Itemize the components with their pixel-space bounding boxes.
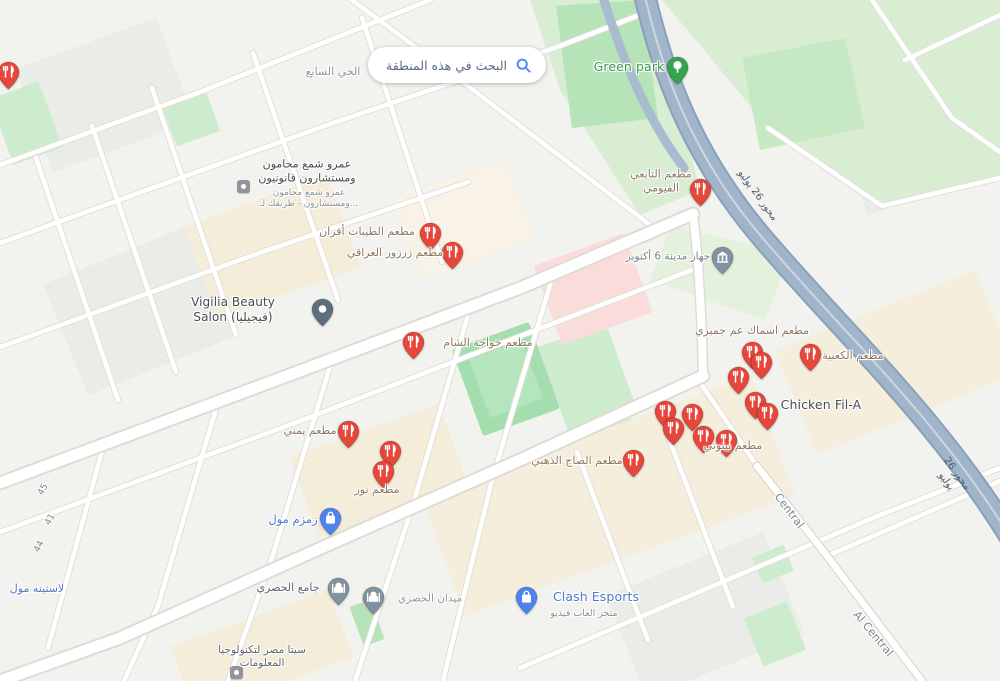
pin-matam-alkaabia[interactable]: [799, 343, 822, 372]
pin-matam-altabei[interactable]: [689, 178, 712, 207]
search-this-area-label: البحث في هذه المنطقة: [386, 58, 507, 73]
map-root: الحي السابععمرو شمع محامون ومستشارون قان…: [0, 0, 1000, 681]
search-this-area-button[interactable]: البحث في هذه المنطقة: [368, 47, 546, 83]
restaurant-pin-icon: [756, 402, 779, 431]
poi-sublabel-amr-shamaa: عمرو شمع محامون ومستشارون - طريقك لـ...: [260, 188, 359, 211]
restaurant-pin-icon: [689, 178, 712, 207]
label-hosary-square: ميدان الحصري: [398, 592, 462, 605]
road-label-26-july-corridor-2: محور 26 يوليو: [926, 451, 975, 505]
poi-label-green-park[interactable]: Green park: [594, 59, 665, 75]
district-label-seventh: الحي السابع: [306, 65, 361, 79]
poi-label-khawaga[interactable]: مطعم خواجة الشام: [443, 336, 532, 350]
civic-pin-icon: [711, 246, 734, 275]
road-label-44: 44: [32, 539, 47, 555]
poi-label-sita-egypt[interactable]: سيتا مصر لتكنولوجيا المعلومات: [218, 644, 306, 670]
poi-label-alsaj-aldahabi[interactable]: مطعم الصاج الذهبي: [531, 454, 622, 468]
pin-restaurant-cluster-c3[interactable]: [662, 417, 685, 446]
poi-label-alkaabia[interactable]: مطعم الكعبية: [822, 349, 883, 363]
pin-matam-yamani[interactable]: [337, 420, 360, 449]
pin-zamzam-mall[interactable]: [319, 507, 342, 536]
restaurant-pin-icon: [402, 331, 425, 360]
poi-label-bitoti[interactable]: مطعم بيتوتي: [704, 439, 763, 453]
road-label-al-central: Al Central: [850, 608, 896, 659]
road-label-45: 45: [36, 482, 51, 498]
restaurant-pin-icon: [0, 61, 20, 90]
search-icon: [516, 58, 531, 73]
poi-label-lastina-mall[interactable]: لاستينه مول: [10, 582, 64, 596]
pin-clash-esports[interactable]: [515, 586, 538, 615]
poi-label-altabei[interactable]: مطعم التابعي الفيومي: [630, 167, 692, 195]
business-dot-icon: [234, 670, 239, 675]
mosque-pin-icon: [362, 586, 385, 615]
generic-pin-icon: [311, 298, 334, 327]
restaurant-pin-icon: [662, 417, 685, 446]
poi-label-vigilia[interactable]: Vigilia Beauty Salon (فيجيليا): [191, 295, 275, 325]
road-label-41: 41: [43, 512, 58, 528]
pin-hosary-mosque[interactable]: [327, 577, 350, 606]
poi-label-altayibat[interactable]: مطعم الطيبات أفران: [319, 225, 415, 239]
poi-label-city-authority[interactable]: جهاز مدينة 6 أكتوبر: [626, 250, 710, 263]
poi-label-zarzour[interactable]: مطعم زرزور العراقي: [347, 246, 443, 260]
pin-october-city-authority[interactable]: [711, 246, 734, 275]
pin-vigilia-salon[interactable]: [311, 298, 334, 327]
pin-hosary-square[interactable]: [362, 586, 385, 615]
poi-label-hosary-mosque[interactable]: جامع الحصري: [256, 581, 319, 595]
road-label-26-july-corridor-1: محور 26 يوليو: [734, 168, 779, 224]
icon-amr-shamaa-office[interactable]: [237, 180, 250, 193]
restaurant-pin-icon: [441, 241, 464, 270]
road-label-central: Central: [771, 491, 807, 532]
poi-label-asmak-gambary[interactable]: مطعم اسماك عم جمبري: [695, 324, 809, 338]
poi-overlay: الحي السابععمرو شمع محامون ومستشارون قان…: [0, 0, 1000, 681]
restaurant-pin-icon: [622, 449, 645, 478]
poi-label-chicken-fil-a[interactable]: Chicken Fil-A: [781, 397, 862, 413]
pin-restaurant-cluster-b2[interactable]: [750, 351, 773, 380]
pin-matam-zarzour[interactable]: [441, 241, 464, 270]
business-dot-icon: [241, 184, 246, 189]
poi-label-amr-shamaa[interactable]: عمرو شمع محامون ومستشارون قانونيون: [258, 157, 355, 185]
pin-matam-alsaj[interactable]: [622, 449, 645, 478]
mall-pin-icon: [319, 507, 342, 536]
pin-matam-khawaga[interactable]: [402, 331, 425, 360]
restaurant-pin-icon: [750, 351, 773, 380]
pin-restaurant-edge[interactable]: [0, 61, 20, 90]
mosque-pin-icon: [327, 577, 350, 606]
restaurant-pin-icon: [799, 343, 822, 372]
poi-label-nour[interactable]: مطعم نور: [354, 483, 399, 497]
park-pin-icon: [666, 56, 689, 85]
poi-label-clash-esports[interactable]: Clash Esports: [553, 589, 639, 605]
poi-sublabel-clash-esports: متجر العاب فيديو: [550, 608, 617, 620]
pin-green-park[interactable]: [666, 56, 689, 85]
mall-pin-icon: [515, 586, 538, 615]
poi-label-yamani[interactable]: مطعم يمني: [284, 424, 337, 438]
restaurant-pin-icon: [337, 420, 360, 449]
poi-label-zamzam-mall[interactable]: زمزم مول: [268, 512, 317, 526]
pin-chicken-fil-a[interactable]: [756, 402, 779, 431]
